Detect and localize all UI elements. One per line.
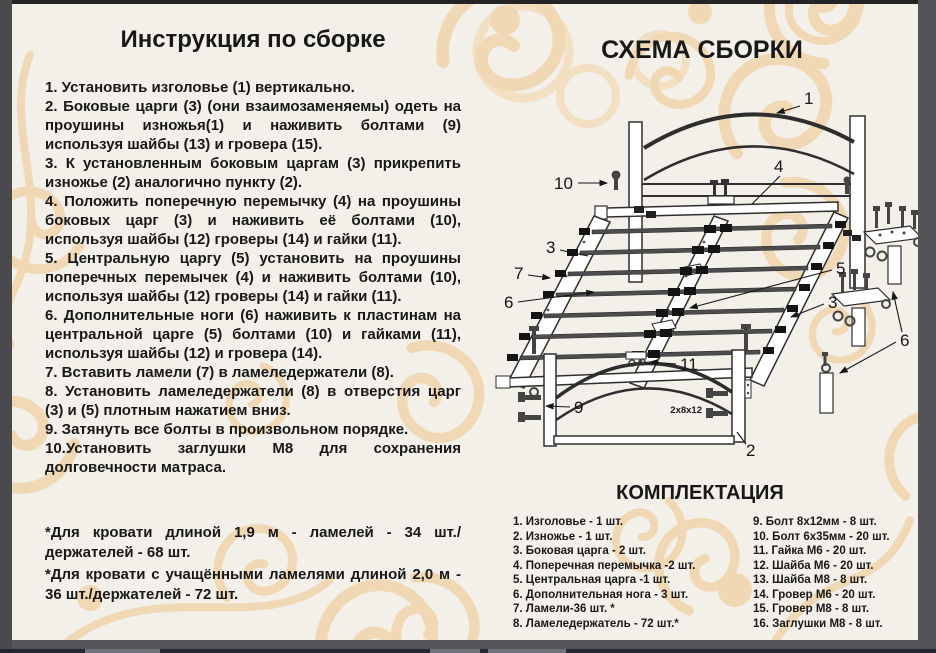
leg-assembly-upper: [864, 202, 922, 284]
footnote: *Для кровати длиной 1,9 м - ламелей - 34…: [45, 523, 461, 563]
callout-2: 2: [746, 441, 755, 460]
document-page: Инструкция по сборке 1. Установить изгол…: [0, 0, 936, 653]
diagram-title: СХЕМА СБОРКИ: [484, 36, 920, 65]
part-item: 16. Заглушки М8 - 8 шт.: [753, 617, 913, 632]
instruction-step: 4. Положить поперечную перемычку (4) на …: [45, 192, 461, 249]
parts-column-left: 1. Изголовье - 1 шт. 2. Изножье - 1 шт. …: [513, 515, 753, 631]
viewer-bottom-edge: [0, 640, 936, 649]
part-item: 2. Изножье - 1 шт.: [513, 530, 753, 545]
viewer-right-edge[interactable]: [918, 0, 936, 653]
headboard: [629, 114, 865, 288]
part-item: 11. Гайка М6 - 20 шт.: [753, 544, 913, 559]
parts-column-right: 9. Болт 8x12мм - 8 шт. 10. Болт 6x35мм -…: [753, 515, 913, 631]
part-item: 12. Шайба М6 - 20 шт.: [753, 559, 913, 574]
callout-9: 9: [574, 398, 583, 417]
part-item: 7. Ламели-36 шт. *: [513, 602, 753, 617]
part-item: 1. Изголовье - 1 шт.: [513, 515, 753, 530]
taskbar-sliver[interactable]: [0, 649, 936, 653]
callout-3-left: 3: [546, 238, 555, 257]
taskbar-item[interactable]: [85, 649, 160, 653]
callout-6-right: 6: [900, 331, 909, 350]
part-item: 9. Болт 8x12мм - 8 шт.: [753, 515, 913, 530]
instruction-step: 2. Боковые царги (3) (они взаимозаменяем…: [45, 97, 461, 154]
instruction-step: 3. К установленным боковым царгам (3) пр…: [45, 154, 461, 192]
instructions-title: Инструкция по сборке: [45, 26, 461, 54]
parts-list: 1. Изголовье - 1 шт. 2. Изножье - 1 шт. …: [513, 515, 913, 631]
instruction-step: 7. Вставить ламели (7) в ламеледержатели…: [45, 363, 461, 382]
footnote: *Для кровати с учащёнными ламелями длино…: [45, 565, 461, 605]
bolt-size-note: 2x8x12: [670, 405, 702, 416]
callout-7: 7: [514, 264, 523, 283]
callout-1: 1: [804, 89, 813, 108]
instruction-step: 1. Установить изголовье (1) вертикально.: [45, 78, 461, 97]
assembly-diagram: 1 10 4 3 7 6 5 3 11 9 2 6 2x8x12: [488, 80, 930, 475]
instruction-step: 10.Установить заглушки М8 для сохранения…: [45, 439, 461, 477]
part-item: 14. Гровер М6 - 20 шт.: [753, 588, 913, 603]
callout-5: 5: [836, 259, 845, 278]
bolt-detail-10: [612, 171, 620, 190]
callout-10: 10: [554, 174, 573, 193]
instruction-step: 8. Установить ламеледержатели (8) в отве…: [45, 382, 461, 420]
part-item: 4. Поперечная перемычка -2 шт.: [513, 559, 753, 574]
taskbar-item[interactable]: [488, 649, 566, 653]
leg-detail: [820, 352, 833, 413]
instruction-step: 6. Дополнительные ноги (6) наживить к пл…: [45, 306, 461, 363]
viewer-left-edge: [0, 0, 12, 653]
part-item: 5. Центральная царга -1 шт.: [513, 573, 753, 588]
callout-4: 4: [774, 157, 783, 176]
callout-6-left: 6: [504, 293, 513, 312]
part-item: 13. Шайба М8 - 8 шт.: [753, 573, 913, 588]
instructions-panel: Инструкция по сборке 1. Установить изгол…: [45, 26, 461, 607]
viewer-top-edge: [0, 0, 936, 4]
footnotes: *Для кровати длиной 1,9 м - ламелей - 34…: [45, 523, 461, 605]
callout-11: 11: [680, 355, 698, 374]
part-item: 15. Гровер М8 - 8 шт.: [753, 602, 913, 617]
parts-title: КОМПЛЕКТАЦИЯ: [480, 482, 920, 505]
taskbar-item[interactable]: [430, 649, 480, 653]
part-item: 3. Боковая царга - 2 шт.: [513, 544, 753, 559]
instruction-steps: 1. Установить изголовье (1) вертикально.…: [45, 78, 461, 477]
callout-3-right: 3: [828, 293, 837, 312]
part-item: 10. Болт 6x35мм - 20 шт.: [753, 530, 913, 545]
instruction-step: 9. Затянуть все болты в произвольном пор…: [45, 420, 461, 439]
part-item: 8. Ламеледержатель - 72 шт.*: [513, 617, 753, 632]
part-item: 6. Дополнительная нога - 3 шт.: [513, 588, 753, 603]
instruction-step: 5. Центральную царгу (5) установить на п…: [45, 249, 461, 306]
